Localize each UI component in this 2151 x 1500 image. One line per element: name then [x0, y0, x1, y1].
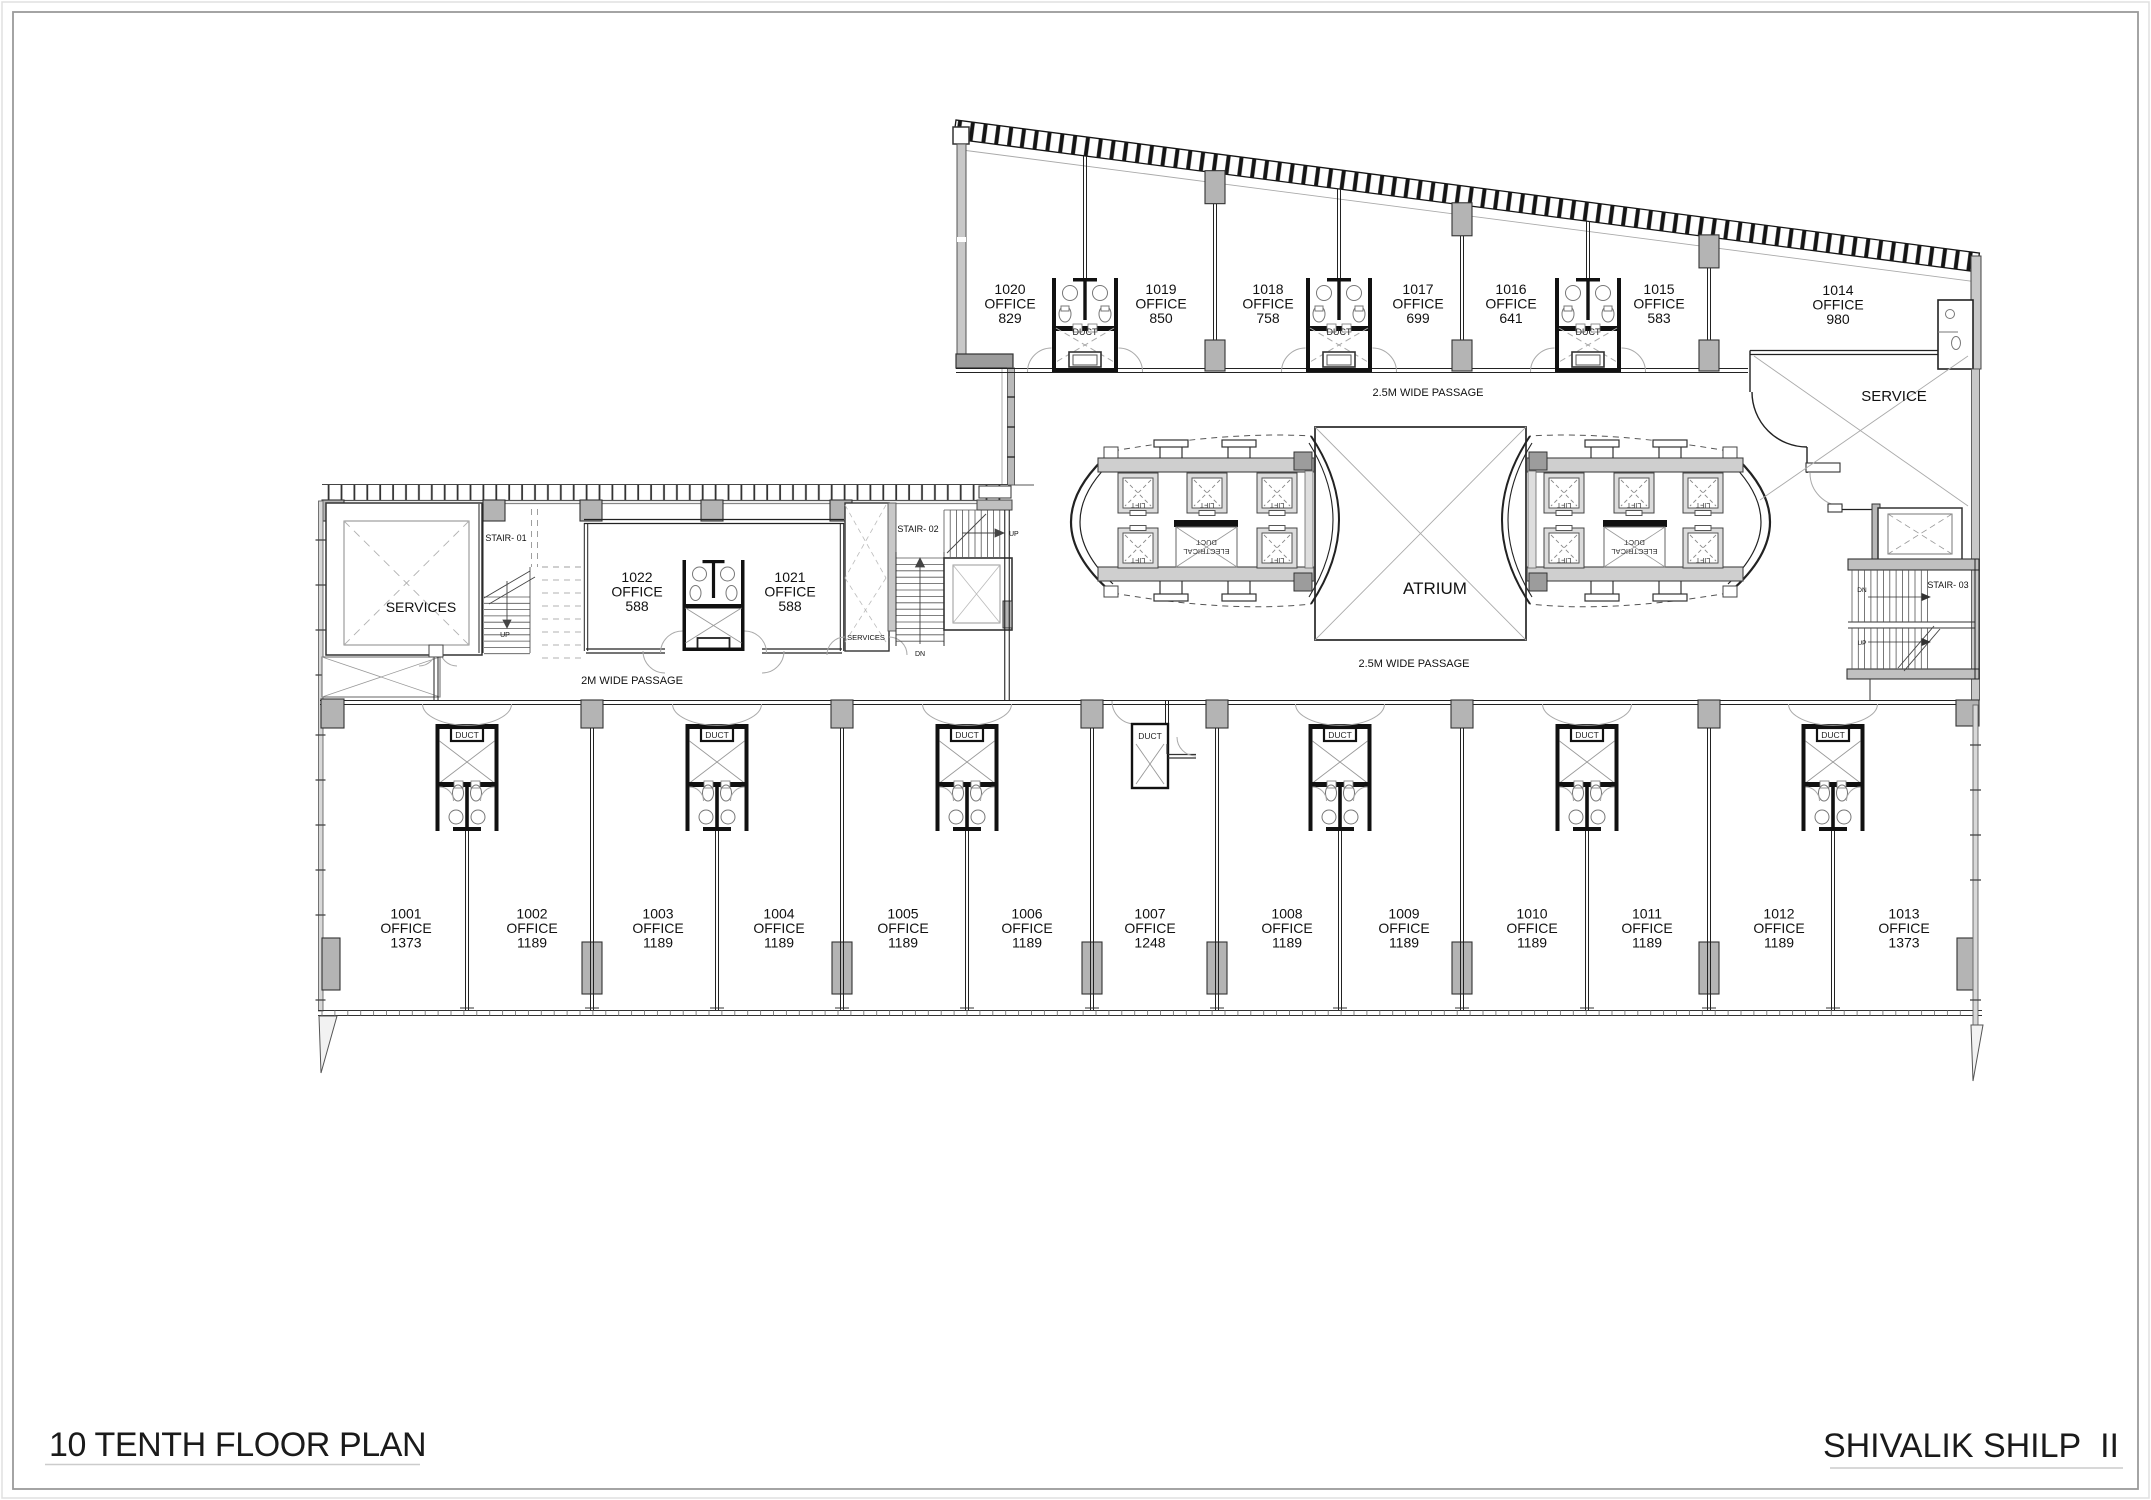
svg-text:ELECTRICAL: ELECTRICAL — [1183, 547, 1229, 556]
svg-text:SHIVALIK SHILP II: SHIVALIK SHILP II — [1823, 1427, 2119, 1465]
svg-text:ATRIUM: ATRIUM — [1403, 579, 1467, 598]
svg-text:1189: 1189 — [517, 934, 547, 950]
svg-text:1373: 1373 — [390, 934, 421, 950]
svg-text:1189: 1189 — [1632, 934, 1662, 950]
svg-text:2M WIDE PASSAGE: 2M WIDE PASSAGE — [581, 675, 683, 687]
svg-text:583: 583 — [1647, 310, 1671, 326]
svg-text:1373: 1373 — [1888, 934, 1919, 950]
svg-text:DUCT: DUCT — [1575, 730, 1599, 740]
svg-text:829: 829 — [998, 310, 1022, 326]
svg-text:DUCT: DUCT — [1576, 327, 1601, 337]
svg-text:DUCT: DUCT — [1073, 327, 1098, 337]
svg-text:ELECTRICAL: ELECTRICAL — [1611, 547, 1657, 556]
svg-text:STAIR- 03: STAIR- 03 — [1927, 580, 1968, 590]
svg-text:1189: 1189 — [1517, 934, 1547, 950]
svg-text:2.5M WIDE PASSAGE: 2.5M WIDE PASSAGE — [1372, 387, 1483, 399]
svg-text:DUCT: DUCT — [705, 730, 729, 740]
svg-text:DUCT: DUCT — [1196, 538, 1217, 547]
svg-text:10 TENTH FLOOR PLAN: 10 TENTH FLOOR PLAN — [49, 1426, 426, 1464]
svg-text:1248: 1248 — [1134, 934, 1165, 950]
svg-text:DUCT: DUCT — [1138, 731, 1162, 741]
svg-text:DUCT: DUCT — [1327, 327, 1352, 337]
svg-text:DN: DN — [915, 651, 925, 658]
svg-text:588: 588 — [778, 598, 802, 614]
svg-text:1189: 1189 — [643, 934, 673, 950]
svg-text:758: 758 — [1256, 310, 1280, 326]
svg-text:588: 588 — [625, 598, 649, 614]
svg-text:1189: 1189 — [1389, 934, 1419, 950]
svg-text:DUCT: DUCT — [1328, 730, 1352, 740]
svg-text:UP: UP — [500, 632, 510, 639]
svg-text:SERVICES: SERVICES — [847, 633, 885, 642]
svg-text:DUCT: DUCT — [1821, 730, 1845, 740]
svg-text:SERVICES: SERVICES — [386, 599, 457, 615]
svg-text:1189: 1189 — [764, 934, 794, 950]
svg-text:DUCT: DUCT — [955, 730, 979, 740]
svg-text:850: 850 — [1149, 310, 1173, 326]
svg-text:SERVICE: SERVICE — [1861, 388, 1927, 405]
svg-text:1189: 1189 — [888, 934, 918, 950]
svg-text:STAIR- 02: STAIR- 02 — [897, 524, 938, 534]
svg-text:980: 980 — [1826, 311, 1850, 327]
svg-text:DUCT: DUCT — [1624, 538, 1645, 547]
svg-text:1189: 1189 — [1764, 934, 1794, 950]
svg-text:699: 699 — [1406, 310, 1430, 326]
svg-text:UP: UP — [1009, 531, 1019, 538]
svg-text:1189: 1189 — [1272, 934, 1302, 950]
svg-text:UP: UP — [1857, 640, 1866, 647]
svg-text:1189: 1189 — [1012, 934, 1042, 950]
svg-text:641: 641 — [1499, 310, 1523, 326]
svg-text:STAIR- 01: STAIR- 01 — [485, 533, 526, 543]
svg-text:DN: DN — [1857, 587, 1867, 594]
svg-text:DUCT: DUCT — [455, 730, 479, 740]
svg-text:2.5M WIDE PASSAGE: 2.5M WIDE PASSAGE — [1358, 658, 1469, 670]
